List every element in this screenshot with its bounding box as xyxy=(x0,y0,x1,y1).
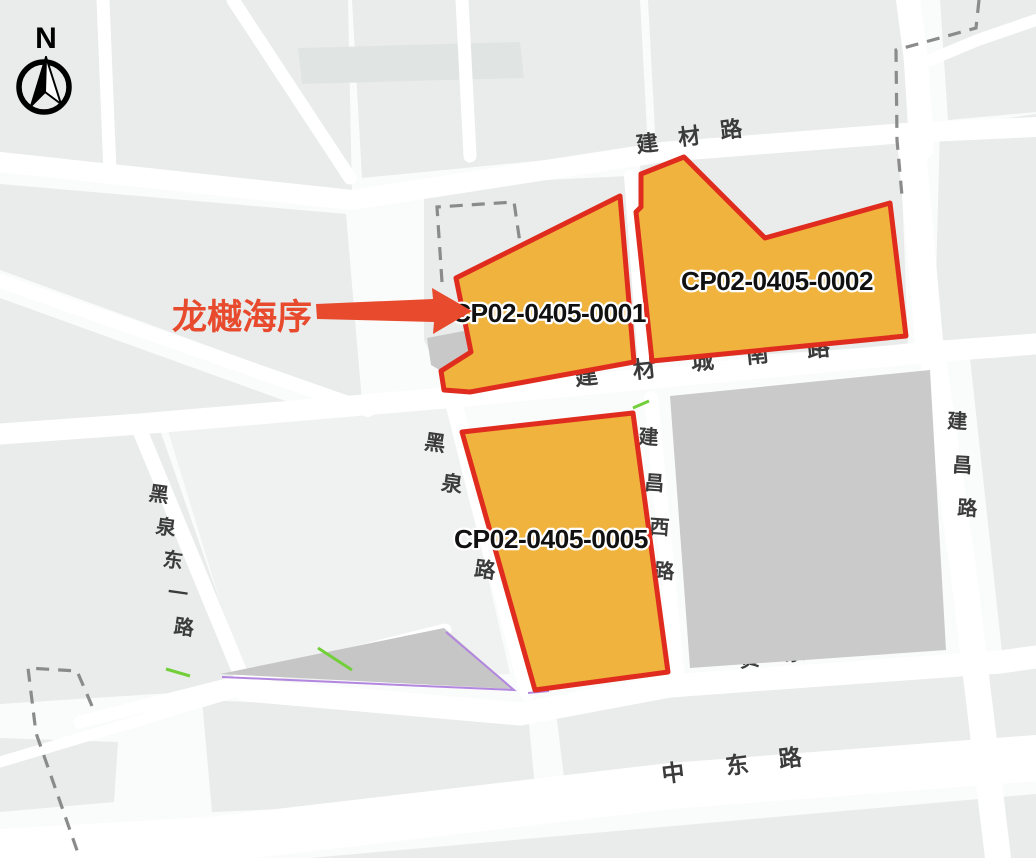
road-vertical-topright xyxy=(908,0,922,148)
annotation-label: 龙樾海序 xyxy=(172,298,312,337)
road-vertical-topmid xyxy=(462,0,470,156)
gray-block-large xyxy=(670,370,946,668)
road-label-char: 一 xyxy=(166,582,189,607)
block xyxy=(934,114,1036,358)
road-vertical-topleft xyxy=(103,0,110,172)
road-label-char: 建 xyxy=(635,130,660,157)
road-label-char: 路 xyxy=(719,116,745,144)
compass-north-label: N xyxy=(35,22,57,55)
road-label-char: 东 xyxy=(161,547,184,574)
parcel-label-0002: CP02-0405-0002 xyxy=(681,266,873,296)
road-label-char: 黑 xyxy=(423,431,447,457)
parcel-label-0001: CP02-0405-0001 xyxy=(452,298,646,328)
road-label-char: 昌 xyxy=(644,471,666,495)
road-label-char: 路 xyxy=(957,496,979,521)
map-canvas: 贺 家 村 路 建 材 路 建 材 城 南 xyxy=(0,0,1036,858)
road-label-char: 昌 xyxy=(952,454,973,478)
parcel-map: 贺 家 村 路 建 材 路 建 材 城 南 xyxy=(0,0,1036,858)
road-label-char: 材 xyxy=(677,123,702,150)
road-label-char: 建 xyxy=(947,409,968,434)
road-label-char: 路 xyxy=(777,744,804,773)
parcel-label-0005: CP02-0405-0005 xyxy=(454,524,648,554)
road-label-char: 黑 xyxy=(147,482,170,508)
road-label-char: 东 xyxy=(724,751,750,780)
road-jianchang-lu-north xyxy=(912,150,930,352)
building-shade xyxy=(298,42,524,84)
road-label-char: 中 xyxy=(660,759,686,788)
road-label-char: 建 xyxy=(638,424,660,449)
block xyxy=(940,0,1036,120)
